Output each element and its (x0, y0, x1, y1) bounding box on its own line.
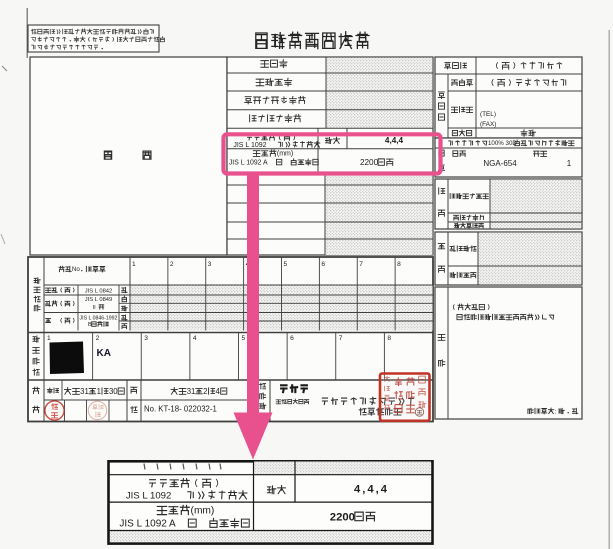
svg-text:2: 2 (203, 387, 207, 396)
svg-text:No: No (72, 266, 80, 273)
svg-text:5: 5 (284, 261, 288, 268)
svg-text:2: 2 (96, 335, 100, 342)
svg-text:KA: KA (97, 348, 111, 359)
svg-text:8: 8 (387, 335, 391, 342)
svg-text:(FAX): (FAX) (480, 121, 496, 128)
svg-text:No. KT-18- 022032-1: No. KT-18- 022032-1 (144, 404, 217, 413)
svg-text:JIS L 0846-1992: JIS L 0846-1992 (80, 316, 118, 322)
svg-text:5: 5 (242, 335, 246, 342)
svg-text:NGA-654: NGA-654 (483, 159, 517, 168)
svg-text:4,4,4: 4,4,4 (354, 483, 389, 495)
svg-text:3: 3 (144, 335, 148, 342)
svg-text:2200: 2200 (330, 511, 355, 523)
svg-text:1: 1 (567, 159, 572, 168)
svg-text:JIS L 1092: JIS L 1092 (233, 142, 266, 149)
svg-text:JIS L 0842: JIS L 0842 (85, 288, 113, 294)
svg-text:2: 2 (170, 261, 174, 268)
svg-text:JIS L 1092: JIS L 1092 (126, 490, 172, 501)
svg-text:(TEL): (TEL) (480, 111, 496, 118)
svg-text:2200: 2200 (360, 158, 379, 167)
svg-text:(mm): (mm) (191, 506, 215, 517)
svg-text:6: 6 (290, 335, 294, 342)
svg-text:7: 7 (339, 335, 343, 342)
svg-text:7: 7 (359, 261, 363, 268)
svg-text:6: 6 (321, 261, 325, 268)
svg-text:3: 3 (208, 261, 212, 268)
svg-text:31: 31 (187, 387, 196, 396)
svg-text:1: 1 (97, 387, 101, 396)
svg-text:1: 1 (47, 335, 51, 342)
svg-text:8: 8 (397, 261, 401, 268)
svg-text:JIS L 1092 A: JIS L 1092 A (229, 159, 268, 166)
svg-text::: : (554, 408, 556, 415)
svg-text:100% 30D: 100% 30D (488, 140, 517, 147)
svg-text:4: 4 (193, 335, 197, 342)
svg-text:II: II (93, 305, 97, 311)
svg-text:4: 4 (216, 387, 221, 396)
svg-text:4,4,4: 4,4,4 (385, 136, 404, 145)
svg-text:31: 31 (80, 387, 89, 396)
svg-text:30: 30 (109, 387, 118, 396)
svg-text:JIS L 0849: JIS L 0849 (85, 297, 113, 303)
svg-text:1: 1 (132, 261, 136, 268)
svg-text:(mm): (mm) (277, 151, 293, 158)
svg-text:JIS L 1092 A: JIS L 1092 A (119, 519, 176, 530)
